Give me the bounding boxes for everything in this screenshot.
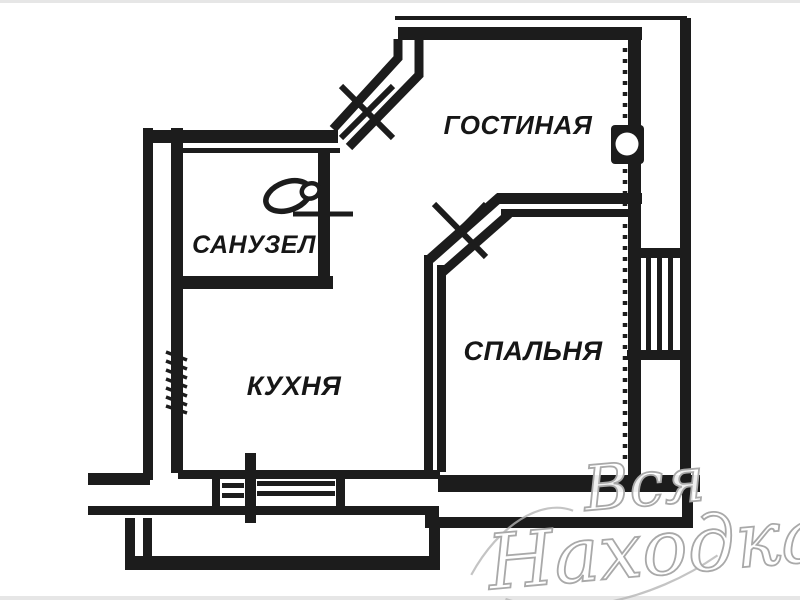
toilet-icon (262, 172, 323, 217)
wall-living-top-thick (398, 27, 642, 40)
wall-left-outer (143, 128, 153, 480)
room-label-bathroom: САНУЗЕЛ (192, 231, 316, 259)
bay-mullion (657, 252, 662, 358)
wall-bedroom-left-outer (424, 255, 433, 472)
wall-bottom-right-connector (429, 520, 440, 560)
window-glazing-line (257, 481, 335, 486)
wall-hall-top-thick (143, 130, 338, 143)
wall-bathroom-bottom (183, 276, 333, 289)
room-labels: ГОСТИНАЯ САНУЗЕЛ КУХНЯ СПАЛЬНЯ (192, 110, 603, 401)
floor-plan-page: ГОСТИНАЯ САНУЗЕЛ КУХНЯ СПАЛЬНЯ Вся Наход… (0, 0, 800, 600)
scan-edge-bottom (0, 596, 800, 600)
wall-bedroom-top-outer (497, 193, 642, 204)
watermark-word2: Находка (482, 489, 800, 600)
floor-plan-svg: ГОСТИНАЯ САНУЗЕЛ КУХНЯ СПАЛЬНЯ Вся Наход… (0, 0, 800, 600)
wall-hall-top-thin (183, 148, 340, 153)
scan-edge-top (0, 0, 800, 3)
wall-stub-left-upper (88, 473, 150, 485)
window-center-post (245, 453, 256, 523)
window-jamb-right (336, 472, 345, 512)
niche-circle (616, 133, 639, 156)
room-label-bedroom: СПАЛЬНЯ (463, 336, 603, 366)
wall-bedroom-left-inner (437, 265, 446, 472)
room-label-kitchen: КУХНЯ (247, 371, 342, 401)
window-glazing-line (222, 483, 244, 488)
wall-top-thin-line (395, 16, 687, 20)
bay-mullion (668, 252, 673, 358)
watermark: Вся Находка (462, 432, 800, 600)
window-glazing-line (257, 491, 335, 496)
wall-bathroom-right (318, 148, 330, 289)
wall-corridor-step (425, 506, 439, 518)
window-jamb-left (212, 472, 220, 512)
wall-niche (611, 125, 644, 164)
wall-right-inner (628, 27, 641, 477)
room-label-living: ГОСТИНАЯ (444, 110, 593, 140)
wall-bottom-outer (125, 556, 440, 570)
wall-bedroom-top-inner (501, 209, 631, 217)
wall-stairwell-stub-b (143, 518, 152, 562)
wall-stairwell-stub-a (125, 518, 135, 562)
bay-mullion (646, 252, 651, 358)
wall-kitchen-bottom-bottom-line (88, 506, 427, 515)
window-glazing-line (222, 493, 244, 498)
wall-left-inner (171, 128, 183, 473)
door-symbol-bedroom (434, 204, 486, 257)
